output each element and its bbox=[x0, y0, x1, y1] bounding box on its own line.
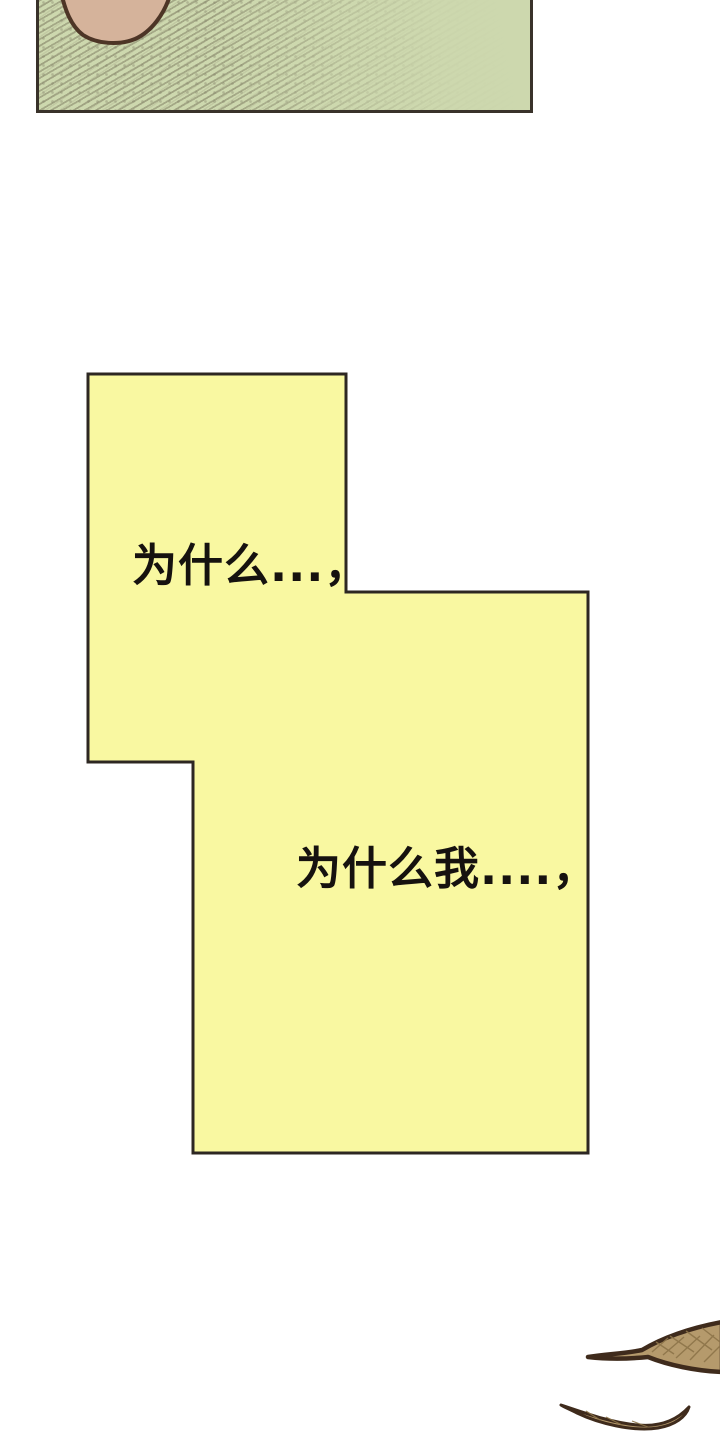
speech-text-2: 为什么我....， bbox=[296, 846, 598, 891]
comic-page: 为什么...， 为什么我....， bbox=[0, 0, 720, 1440]
large-leaf bbox=[588, 1322, 720, 1372]
small-leaf bbox=[561, 1405, 689, 1429]
artwork-layer bbox=[0, 0, 720, 1440]
large-leaf-shape bbox=[588, 1322, 720, 1372]
speech-bubble-shape bbox=[88, 374, 588, 1153]
small-leaf-shape bbox=[561, 1405, 689, 1429]
speech-text-1: 为什么...， bbox=[132, 543, 370, 588]
